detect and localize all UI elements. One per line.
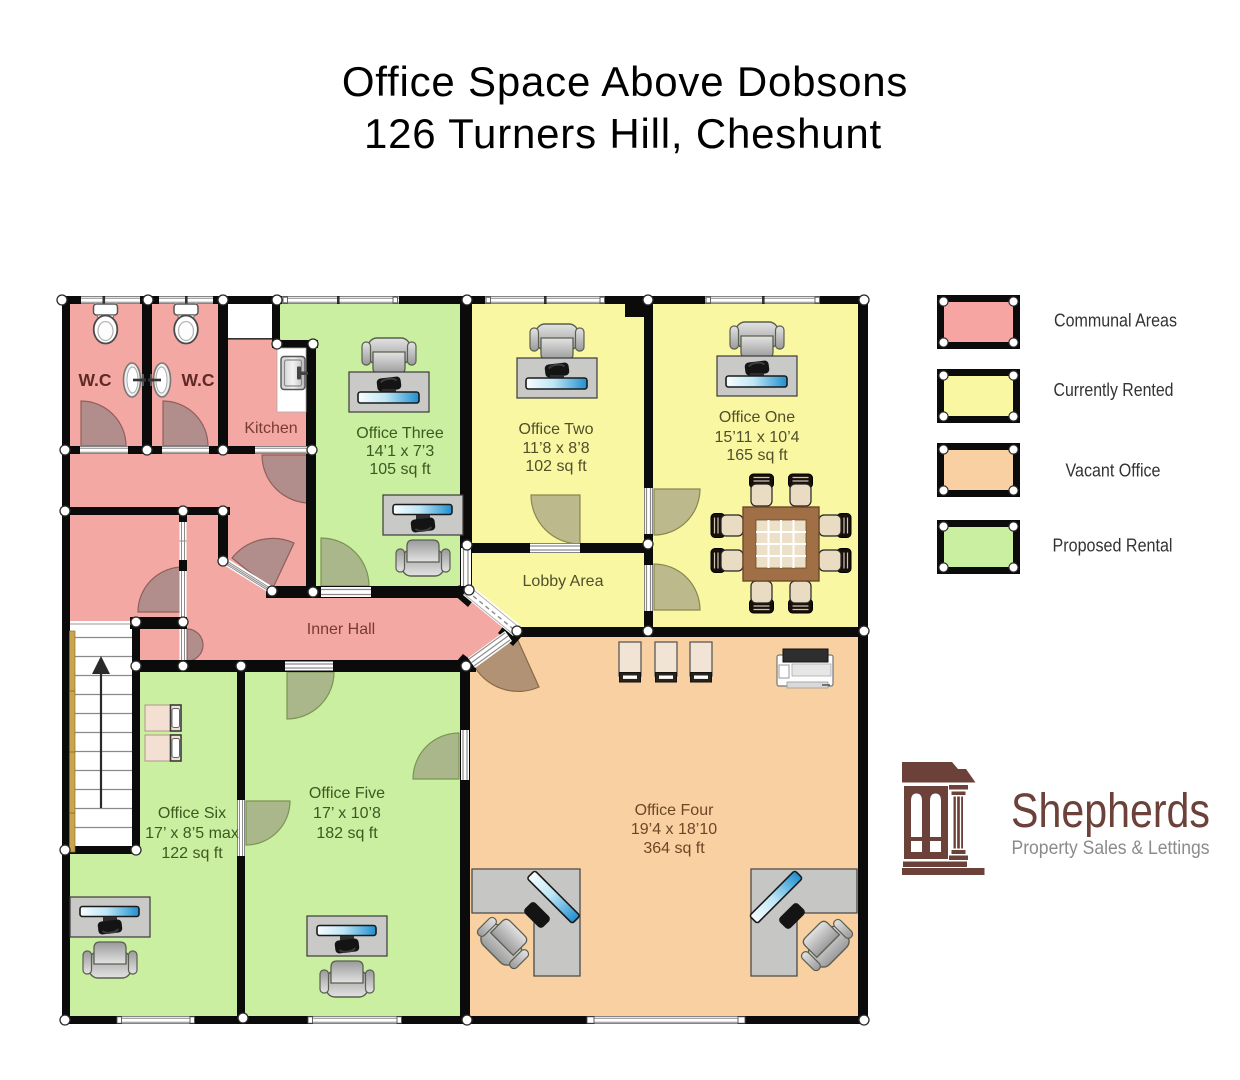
svg-text:17’ x 10’8: 17’ x 10’8 xyxy=(313,805,381,822)
svg-text:Office Six: Office Six xyxy=(158,805,226,822)
svg-text:364 sq ft: 364 sq ft xyxy=(643,840,705,857)
svg-text:Kitchen: Kitchen xyxy=(244,420,297,437)
svg-text:182 sq ft: 182 sq ft xyxy=(316,825,378,842)
svg-text:Property Sales & Lettings: Property Sales & Lettings xyxy=(1012,837,1210,859)
svg-text:Inner Hall: Inner Hall xyxy=(307,621,375,638)
svg-text:W.C: W.C xyxy=(181,370,214,390)
svg-text:Office Four: Office Four xyxy=(635,802,715,819)
svg-text:122 sq ft: 122 sq ft xyxy=(161,845,223,862)
svg-text:15’11 x 10’4: 15’11 x 10’4 xyxy=(714,429,799,446)
svg-text:19’4 x 18’10: 19’4 x 18’10 xyxy=(631,821,717,838)
svg-text:Proposed Rental: Proposed Rental xyxy=(1053,536,1173,556)
svg-text:Office Two: Office Two xyxy=(519,421,594,438)
svg-text:Shepherds: Shepherds xyxy=(1011,785,1210,838)
svg-text:14’1 x 7’3: 14’1 x 7’3 xyxy=(366,443,435,460)
svg-text:126 Turners Hill, Cheshunt: 126 Turners Hill, Cheshunt xyxy=(364,110,882,157)
svg-text:Office One: Office One xyxy=(719,409,795,426)
svg-text:Communal Areas: Communal Areas xyxy=(1054,311,1177,331)
svg-text:Vacant Office: Vacant Office xyxy=(1066,461,1161,481)
svg-text:Office Space Above Dobsons: Office Space Above Dobsons xyxy=(342,58,908,105)
svg-text:105 sq ft: 105 sq ft xyxy=(369,461,431,478)
svg-text:Currently Rented: Currently Rented xyxy=(1054,380,1174,400)
svg-text:11’8 x 8’8: 11’8 x 8’8 xyxy=(522,440,589,457)
svg-text:Office Five: Office Five xyxy=(309,785,385,802)
svg-text:102 sq ft: 102 sq ft xyxy=(525,458,587,475)
svg-text:17’ x 8’5 max: 17’ x 8’5 max xyxy=(145,825,239,842)
svg-text:Office Three: Office Three xyxy=(356,425,444,442)
svg-text:165 sq ft: 165 sq ft xyxy=(726,447,788,464)
svg-text:Lobby Area: Lobby Area xyxy=(523,573,604,590)
svg-text:W.C: W.C xyxy=(78,370,111,390)
